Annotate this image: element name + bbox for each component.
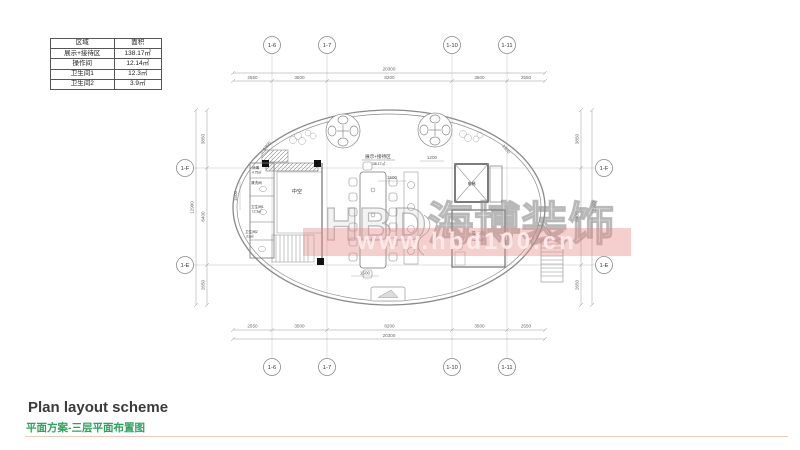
room-label-elevator: 电梯 — [468, 180, 476, 186]
grid-label: 1-11 — [501, 43, 512, 49]
room-label-cleaning: 清洗间 — [251, 180, 262, 185]
dim-interior: 1500 — [387, 175, 398, 180]
left-service-rooms: 消毒 4.75㎡ 清洗间 卫生间1 12.3㎡ 卫生间2 3.9㎡ — [245, 163, 274, 258]
room-area-disinfect: 4.75㎡ — [252, 170, 262, 175]
dim-left-seg: 2650 — [201, 279, 206, 290]
room-area-toilet2: 3.9㎡ — [246, 234, 254, 239]
dimension-top: 20300 2550 3500 8200 3500 2550 — [231, 67, 547, 84]
footer-divider — [25, 436, 788, 437]
toilet-icon — [260, 186, 267, 191]
void-label: 中空 — [292, 187, 302, 195]
dim-right-seg: 2650 — [575, 279, 580, 290]
dim-top-total: 20300 — [383, 67, 396, 72]
room-label-operation: 操作间 — [471, 230, 484, 237]
room-label-exhibition: 展示+接待区 — [365, 153, 391, 160]
plant-icon — [290, 130, 484, 145]
dimension-right: 3850 6400 2650 12900 — [575, 108, 597, 307]
dim-interior: 1500 — [360, 271, 371, 276]
dimension-bottom: 2550 3500 8200 3500 2550 20300 — [231, 324, 547, 342]
dim-bottom-seg: 3500 — [294, 324, 305, 329]
operation-room: 操作间 12.14㎡ — [452, 210, 505, 267]
dim-bottom-seg: 8200 — [384, 324, 395, 329]
round-table-left — [326, 114, 360, 148]
dim-top-seg: 2550 — [247, 75, 258, 80]
floor-plan-drawing: 20300 2550 3500 8200 3500 2550 2550 3500… — [0, 0, 800, 450]
dim-right-seg: 6400 — [575, 211, 580, 222]
dim-bottom-seg: 3500 — [474, 324, 485, 329]
grid-label: 1-F — [181, 166, 190, 172]
dim-interior: 1200 — [427, 155, 438, 160]
dim-interior: 1500 — [233, 190, 238, 201]
interior-staircase — [272, 235, 324, 265]
dim-left-seg: 3850 — [201, 133, 206, 144]
dim-left-seg: 6400 — [201, 211, 206, 222]
dimension-left: 3850 6400 2650 12900 — [190, 108, 210, 307]
dim-top-seg: 3500 — [474, 75, 485, 80]
grid-label: 1-E — [599, 263, 608, 269]
dim-bottom-total: 20300 — [383, 333, 396, 338]
room-label-toilet1: 卫生间1 — [251, 204, 264, 209]
grid-label: 1-7 — [323, 365, 331, 371]
grid-label: 1-7 — [323, 43, 331, 49]
entrance-marker — [371, 287, 405, 301]
grid-label: 1-11 — [501, 365, 512, 371]
grid-label: 1-E — [180, 263, 189, 269]
dim-top-seg: 3500 — [294, 75, 305, 80]
grid-label: 1-6 — [268, 365, 276, 371]
conference-table — [360, 172, 386, 268]
elevator: 电梯 — [455, 164, 502, 202]
dim-left-total: 12900 — [190, 201, 195, 214]
room-label-toilet2: 卫生间2 — [245, 229, 258, 234]
display-case — [404, 172, 430, 264]
room-area-operation: 12.14㎡ — [472, 237, 484, 242]
exterior-staircase — [538, 225, 563, 282]
building-outline — [233, 110, 545, 305]
dim-right-seg: 3850 — [575, 133, 580, 144]
page-title-cn: 平面方案-三层平面布置图 — [26, 420, 145, 435]
dim-bottom-seg: 2550 — [247, 324, 258, 329]
dim-bottom-seg: 2550 — [521, 324, 532, 329]
toilet-icon — [259, 246, 266, 251]
slide: 区域 面积 展示+接待区 138.17㎡ 操作间 12.14㎡ 卫生间1 12.… — [0, 0, 800, 450]
room-label-disinfect: 消毒 — [252, 165, 260, 170]
dim-right-total: 12900 — [592, 201, 597, 214]
grid-label: 1-6 — [268, 43, 276, 49]
dim-top-seg: 2550 — [521, 75, 532, 80]
round-table-right — [418, 113, 452, 147]
room-area-exhibition: 138.17㎡ — [371, 161, 385, 166]
grid-label: 1-10 — [446, 365, 458, 371]
grid-label: 1-F — [600, 166, 609, 172]
page-title-en: Plan layout scheme — [28, 399, 168, 416]
dim-top-seg: 8200 — [384, 75, 395, 80]
grid-label: 1-10 — [446, 43, 458, 49]
room-area-toilet1: 12.3㎡ — [252, 209, 262, 214]
